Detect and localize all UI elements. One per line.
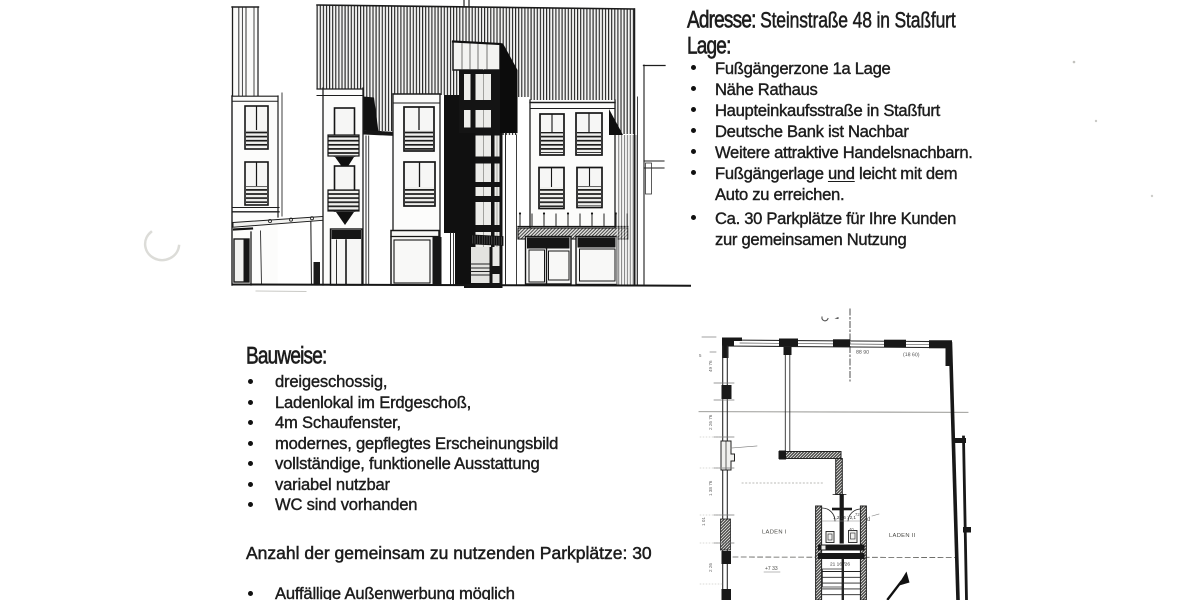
svg-text:88 90: 88 90 [856, 350, 869, 356]
svg-text:1,2 16 : 2,1: 1,2 16 : 2,1 [833, 515, 856, 520]
svg-text:72: 72 [855, 512, 860, 517]
svg-text:d: d [867, 517, 870, 523]
svg-text:2 26: 2 26 [708, 563, 713, 572]
svg-text:LADEN I: LADEN I [762, 530, 787, 536]
svg-text:21 16 /26: 21 16 /26 [830, 562, 850, 568]
svg-text:2 26 76: 2 26 76 [708, 414, 713, 430]
svg-text:49 76: 49 76 [708, 360, 713, 372]
svg-text:40: 40 [849, 527, 854, 532]
svg-text:(18 60): (18 60) [903, 352, 920, 358]
svg-text:1 01: 1 01 [701, 517, 706, 526]
svg-text:+7 33: +7 33 [765, 566, 778, 572]
svg-text:5: 5 [699, 353, 702, 358]
svg-text:1 38 76: 1 38 76 [708, 480, 713, 496]
svg-text:LADEN II: LADEN II [889, 533, 916, 539]
